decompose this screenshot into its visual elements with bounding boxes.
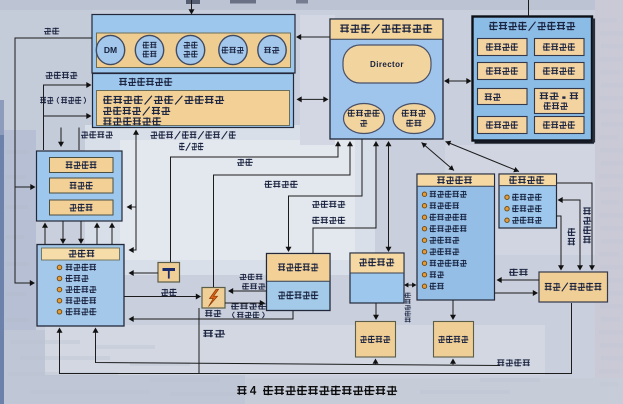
svg-text:Director: Director <box>370 60 404 69</box>
svg-text:4: 4 <box>250 385 257 397</box>
svg-text:DM: DM <box>104 45 117 55</box>
